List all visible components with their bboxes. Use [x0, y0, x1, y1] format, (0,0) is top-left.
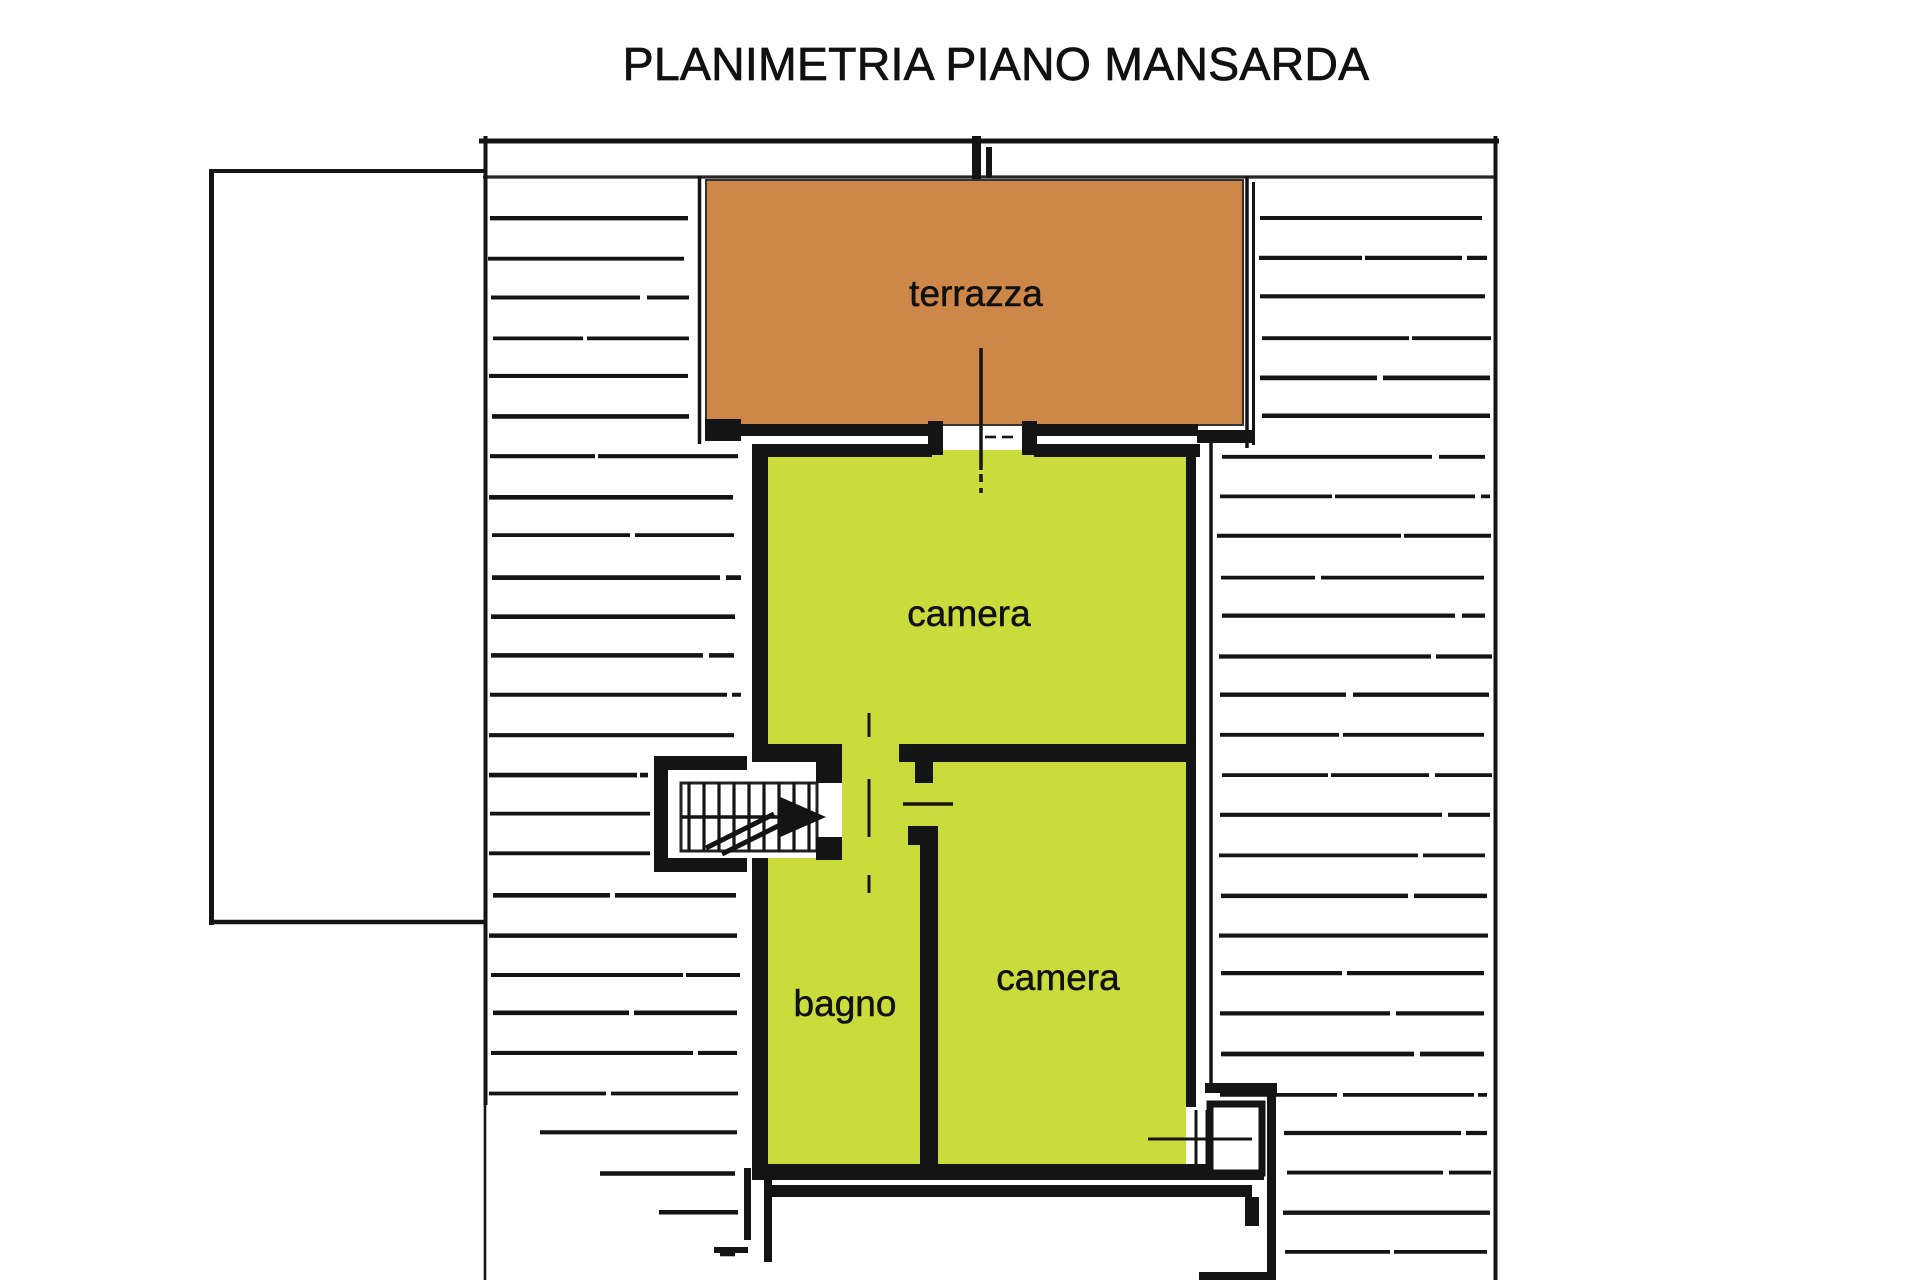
svg-text:terrazza: terrazza [909, 273, 1043, 314]
svg-text:camera: camera [996, 957, 1120, 998]
svg-text:bagno: bagno [794, 983, 897, 1024]
svg-text:PLANIMETRIA PIANO MANSARDA: PLANIMETRIA PIANO MANSARDA [623, 38, 1370, 90]
svg-text:camera: camera [907, 593, 1031, 634]
